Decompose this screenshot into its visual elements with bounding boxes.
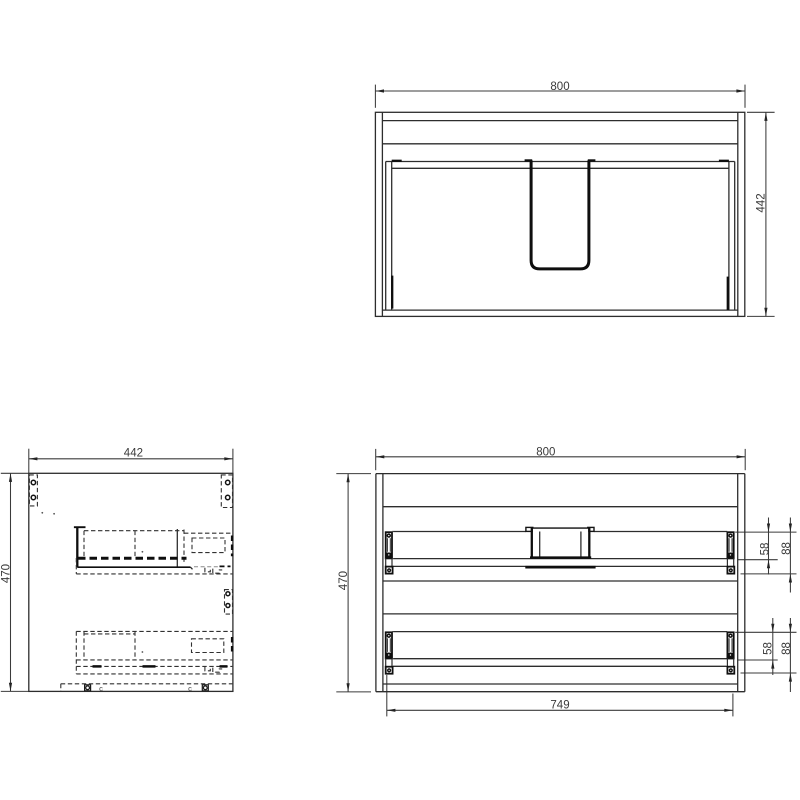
svg-text:c: c xyxy=(99,684,103,693)
svg-text:749: 749 xyxy=(550,700,569,712)
svg-text:470: 470 xyxy=(0,564,12,583)
svg-text:470: 470 xyxy=(338,571,350,590)
svg-text:800: 800 xyxy=(550,81,569,93)
svg-text:c: c xyxy=(188,684,192,693)
svg-text:58: 58 xyxy=(759,543,771,556)
svg-text:88: 88 xyxy=(781,542,793,555)
svg-text:442: 442 xyxy=(124,448,143,460)
svg-text:88: 88 xyxy=(781,642,793,655)
svg-text:800: 800 xyxy=(536,446,555,458)
svg-text:442: 442 xyxy=(756,193,768,212)
svg-text:58: 58 xyxy=(763,642,775,655)
